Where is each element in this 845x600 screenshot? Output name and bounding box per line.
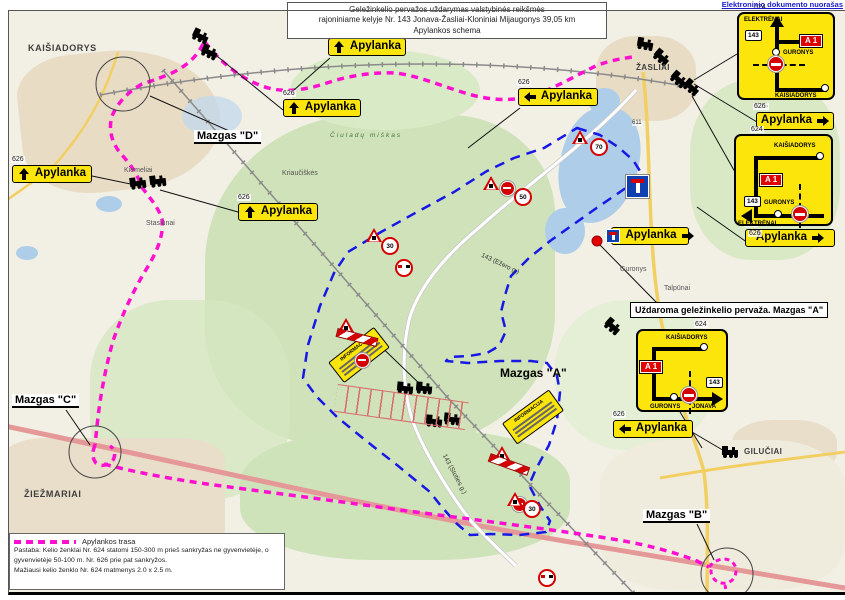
railway-crossing-icon xyxy=(416,381,433,394)
scheme-title-box: Geležinkelio pervažos uždarymas valstybi… xyxy=(287,2,607,39)
railway-crossing-icon xyxy=(636,37,654,52)
title-line-2: rajoniniame kelyje Nr. 143 Jonava-Žaslia… xyxy=(288,15,606,25)
diagram-city-label: ELEKTRĖNAI xyxy=(738,221,776,227)
diagram-road xyxy=(754,156,758,218)
junction-node xyxy=(772,48,780,56)
no-entry-icon xyxy=(500,181,515,196)
label-mazgas-a: Mazgas "A" xyxy=(497,366,570,380)
diagram-city-label: KAIŠIADORYS xyxy=(666,335,707,341)
arrow-left-icon xyxy=(619,423,631,435)
sign-code: 626 xyxy=(11,156,25,163)
sign-code: 626 xyxy=(612,411,626,418)
diagram-city-label: GURONYS xyxy=(783,50,813,56)
railway-crossing-icon xyxy=(149,174,167,188)
detour-route-b-stub xyxy=(725,585,727,597)
label-mazgas-d: Mazgas "D" xyxy=(194,130,261,144)
junction-node xyxy=(700,343,708,351)
detour-sign-label: Apylanka xyxy=(261,206,312,218)
road-143-casing xyxy=(404,90,636,566)
diagram-road xyxy=(754,214,824,218)
sign-code: 611 xyxy=(632,120,642,126)
a1-road-badge: A 1 xyxy=(800,35,822,47)
junction-node xyxy=(670,393,678,401)
speed-limit-sign: 70 xyxy=(590,138,608,156)
diagram-road xyxy=(652,347,656,401)
railway-crossing-icon xyxy=(603,316,623,335)
a1-road-badge: A 1 xyxy=(640,361,662,373)
diagram-road xyxy=(754,156,822,160)
sign-code: 626 xyxy=(753,103,767,110)
legend-note-2: gyvenvietėje 50-100 m. Nr. 626 prie pat … xyxy=(14,556,280,566)
arrow-up-icon xyxy=(288,102,300,114)
no-entry-icon xyxy=(355,353,370,368)
detour-sign-apylanka: 626Apylanka xyxy=(12,165,92,183)
junction-node xyxy=(774,210,782,218)
map-label: ŽASLIAI xyxy=(636,63,670,72)
sign-code: 624 xyxy=(694,321,708,328)
railway-main-sleepers xyxy=(100,64,697,95)
arrow-right-icon xyxy=(812,232,824,244)
map-label: Kriaučiškės xyxy=(282,170,318,177)
detour-scheme-document: Elektroninio dokumento nuorašas Geležink… xyxy=(0,0,845,600)
map-label: GILUČIAI xyxy=(744,447,782,456)
arrow-up-icon xyxy=(244,206,256,218)
sign-code: 626 xyxy=(748,230,762,237)
map-label: Čiuladų miškas xyxy=(330,132,402,139)
detour-sign-apylanka: Apylanka xyxy=(611,227,689,245)
label-mazgas-b: Mazgas "B" xyxy=(643,509,710,523)
sign-code: 624 xyxy=(750,126,764,133)
railway-branch-sleepers xyxy=(163,70,640,600)
sign-code: 626 xyxy=(237,194,251,201)
diagram-city-label: ELEKTRĖNAI xyxy=(744,17,782,23)
title-line-1: Geležinkelio pervažos uždarymas valstybi… xyxy=(288,5,606,15)
e-document-watermark[interactable]: Elektroninio dokumento nuorašas xyxy=(722,0,843,9)
map-label: Stasiūnai xyxy=(146,220,175,227)
junction-diagram-elektrenai-west: 624 KAIŠIADORYS ELEKTRĖNAI A 1 143 GURON… xyxy=(734,134,833,226)
map-canvas xyxy=(0,0,845,600)
arrow-right-icon xyxy=(682,230,694,242)
legend-note-1: Pastaba: Kelio ženklai Nr. 624 statomi 1… xyxy=(14,546,280,556)
legend-route-label: Apylankos trasa xyxy=(82,537,135,546)
label-mazgas-c: Mazgas "C" xyxy=(12,394,79,408)
railway-main-line xyxy=(100,64,697,95)
detour-sign-apylanka: 626Apylanka xyxy=(328,38,406,56)
junction-node xyxy=(816,152,824,160)
detour-sign-apylanka: 626Apylanka xyxy=(238,203,318,221)
detour-sign-label: Apylanka xyxy=(35,168,86,180)
junction-diagram-elektrenai-north: 624 A 1 143 ELEKTRĖNAI GURONYS KAIŠIADOR… xyxy=(737,12,835,100)
detour-sign-label: Apylanka xyxy=(541,91,592,103)
map-vector-layer xyxy=(0,0,845,600)
map-label: KAIŠIADORYS xyxy=(28,43,97,53)
detour-sign-label: Apylanka xyxy=(625,230,676,242)
closed-crossing-dot xyxy=(592,236,602,246)
diagram-city-label: JONAVA xyxy=(692,404,716,410)
closed-crossing-label: Uždaroma geležinkelio pervaža. Mazgas "A… xyxy=(630,302,828,318)
no-entry-icon xyxy=(768,56,784,72)
detour-sign-label: Apylanka xyxy=(305,102,356,114)
diagram-city-label: GURONYS xyxy=(650,404,680,410)
detour-sign-label: Apylanka xyxy=(350,41,401,53)
no-overtaking-icon xyxy=(395,259,413,277)
junction-diagram-jonava: 624 KAIŠIADORYS A 1 143 GURONYS JONAVA xyxy=(636,329,728,412)
diagram-city-label: GURONYS xyxy=(764,200,794,206)
map-label: Talpūnai xyxy=(664,285,690,292)
detour-sign-label: Apylanka xyxy=(756,232,807,244)
road-143-shield: 143 xyxy=(706,377,723,388)
diagram-road xyxy=(652,347,704,351)
junction-node xyxy=(821,84,829,92)
railway-crossing-icon xyxy=(722,446,738,458)
map-label: Kiemeliai xyxy=(124,167,152,174)
speed-limit-sign: 30 xyxy=(381,237,399,255)
arrow-up-icon xyxy=(18,168,30,180)
detour-sign-apylanka: 626Apylanka xyxy=(518,88,598,106)
sign-code: 626 xyxy=(282,90,296,97)
road-143-shield: 143 xyxy=(745,30,762,41)
detour-route-swatch xyxy=(14,540,76,544)
a1-road-badge: A 1 xyxy=(760,174,782,186)
no-through-road-icon xyxy=(606,229,620,243)
arrow-up-icon xyxy=(333,41,345,53)
legend-note-3: Mažiausi kelio ženklo Nr. 624 matmenys 2… xyxy=(14,566,280,576)
no-through-road-sign xyxy=(626,175,649,198)
map-label: Guronys xyxy=(620,266,646,273)
diagram-road xyxy=(775,88,827,92)
no-entry-icon xyxy=(792,206,808,222)
sign-code: 626 xyxy=(517,79,531,86)
diagram-city-label: KAIŠIADORYS xyxy=(775,93,816,99)
title-line-3: Apylankos schema xyxy=(288,26,606,36)
road-143-shield: 143 xyxy=(744,196,761,207)
detour-sign-label: Apylanka xyxy=(761,115,812,127)
no-entry-icon xyxy=(681,387,697,403)
detour-sign-apylanka: 626Apylanka xyxy=(613,420,693,438)
no-overtaking-icon xyxy=(538,569,556,587)
detour-sign-label: Apylanka xyxy=(636,423,687,435)
detour-route-west xyxy=(95,44,203,445)
diagram-road xyxy=(779,40,801,44)
legend-box: Apylankos trasa Pastaba: Kelio ženklai N… xyxy=(9,533,285,590)
speed-limit-sign: 50 xyxy=(514,188,532,206)
detour-sign-apylanka: 626Apylanka xyxy=(283,99,361,117)
arrow-left-icon xyxy=(524,91,536,103)
diagram-city-label: KAIŠIADORYS xyxy=(774,143,815,149)
arrow-right-icon xyxy=(817,115,829,127)
map-label: ŽIEŽMARIAI xyxy=(24,489,82,499)
road-143-closed xyxy=(404,90,636,566)
speed-limit-sign: 30 xyxy=(523,500,541,518)
railway-branch-line xyxy=(163,70,640,600)
detour-sign-apylanka: 626Apylanka xyxy=(756,112,834,130)
